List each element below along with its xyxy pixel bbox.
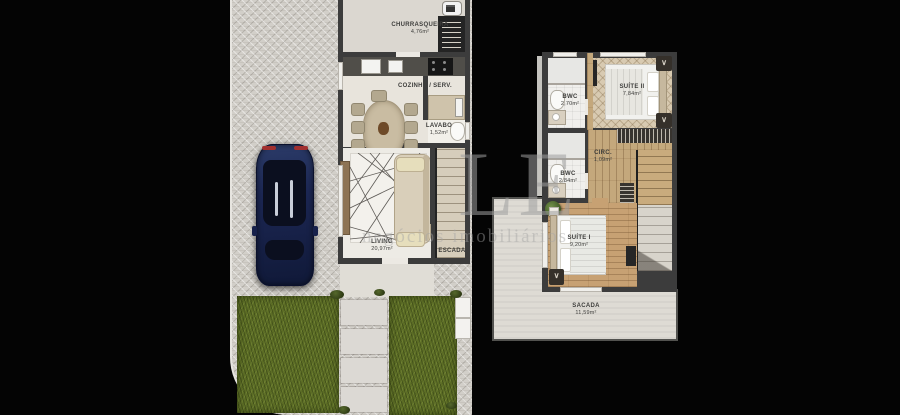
shower [548, 58, 585, 84]
laundry-sink-icon [455, 98, 463, 117]
window [560, 287, 602, 292]
room-label-suite1: SUÍTE I 9,20m² [550, 235, 608, 249]
room-label-escada: ESCADA [424, 248, 480, 255]
sofa-cushion [396, 157, 425, 172]
grass-patch-right [389, 296, 457, 415]
tv-panel [593, 60, 597, 86]
chair [371, 90, 387, 102]
car-mirror [313, 226, 318, 236]
balcony-door [542, 222, 548, 268]
room-label-suite2: SUÍTE II 7,84m² [601, 84, 663, 98]
car [256, 144, 314, 286]
table-centerpiece [378, 122, 389, 135]
chair [351, 121, 365, 134]
stepping-stone [341, 358, 387, 383]
window [553, 52, 577, 57]
room-label-sacada: SACADA 11,59m² [551, 303, 621, 317]
shrub [446, 402, 457, 409]
room-label-bwc1: BWC 2,70m² [546, 94, 594, 108]
stair-railing [617, 129, 672, 143]
tv-panel [626, 246, 636, 266]
wardrobe-hanger-icon [656, 56, 672, 71]
grill-icon [443, 2, 461, 15]
shrub [450, 290, 462, 298]
hall-floor [587, 53, 593, 130]
wardrobe-hanger-icon [656, 113, 672, 128]
window [338, 165, 343, 237]
floor-plan-image: CHURRASQUEIRA 4,76m² COZINHA / SERV. LAV… [0, 0, 900, 415]
grass-patch-left [237, 296, 339, 413]
car-glass-reflection [275, 182, 278, 216]
entry-door-opening [382, 258, 408, 264]
shrub [374, 289, 385, 296]
shrub [338, 406, 350, 414]
room-label-lavabo: LAVABO 1,52m² [408, 123, 470, 137]
car-roof-glass [263, 160, 306, 226]
room-label-circ: CIRC. 1,09m² [580, 150, 626, 164]
stepping-stone [341, 300, 387, 325]
utility-pad [456, 298, 470, 317]
stair-winder [637, 250, 672, 271]
car-taillight [294, 146, 308, 150]
stove-icon [428, 58, 453, 75]
door-opening [592, 198, 608, 204]
car-mirror [252, 226, 257, 236]
bathroom-vanity [548, 183, 566, 198]
entry-path [340, 264, 434, 297]
room-label-living: LIVING 20,97m² [342, 239, 422, 253]
stair-railing [435, 148, 437, 258]
window [600, 52, 646, 57]
sink-icon [388, 60, 403, 73]
window [338, 62, 343, 90]
shrub [330, 290, 344, 299]
staircase-upper [637, 150, 672, 205]
room-label-cozinha: COZINHA / SERV. [381, 83, 469, 90]
room-label-churrasqueira: CHURRASQUEIRA 4,76m² [368, 22, 472, 36]
stepping-stone [341, 329, 387, 354]
shower-glass [548, 83, 585, 85]
staircase [435, 148, 465, 258]
wardrobe-hanger-icon [549, 269, 564, 285]
utility-pad [456, 319, 470, 338]
chair [404, 103, 418, 116]
car-glass-reflection [290, 180, 293, 218]
chair [351, 103, 365, 116]
car-windshield [265, 240, 304, 260]
bathroom-vanity [548, 110, 566, 125]
car-taillight [262, 146, 276, 150]
room-label-bwc2: BWC 2,84m² [544, 171, 592, 185]
fridge-icon [361, 59, 381, 74]
